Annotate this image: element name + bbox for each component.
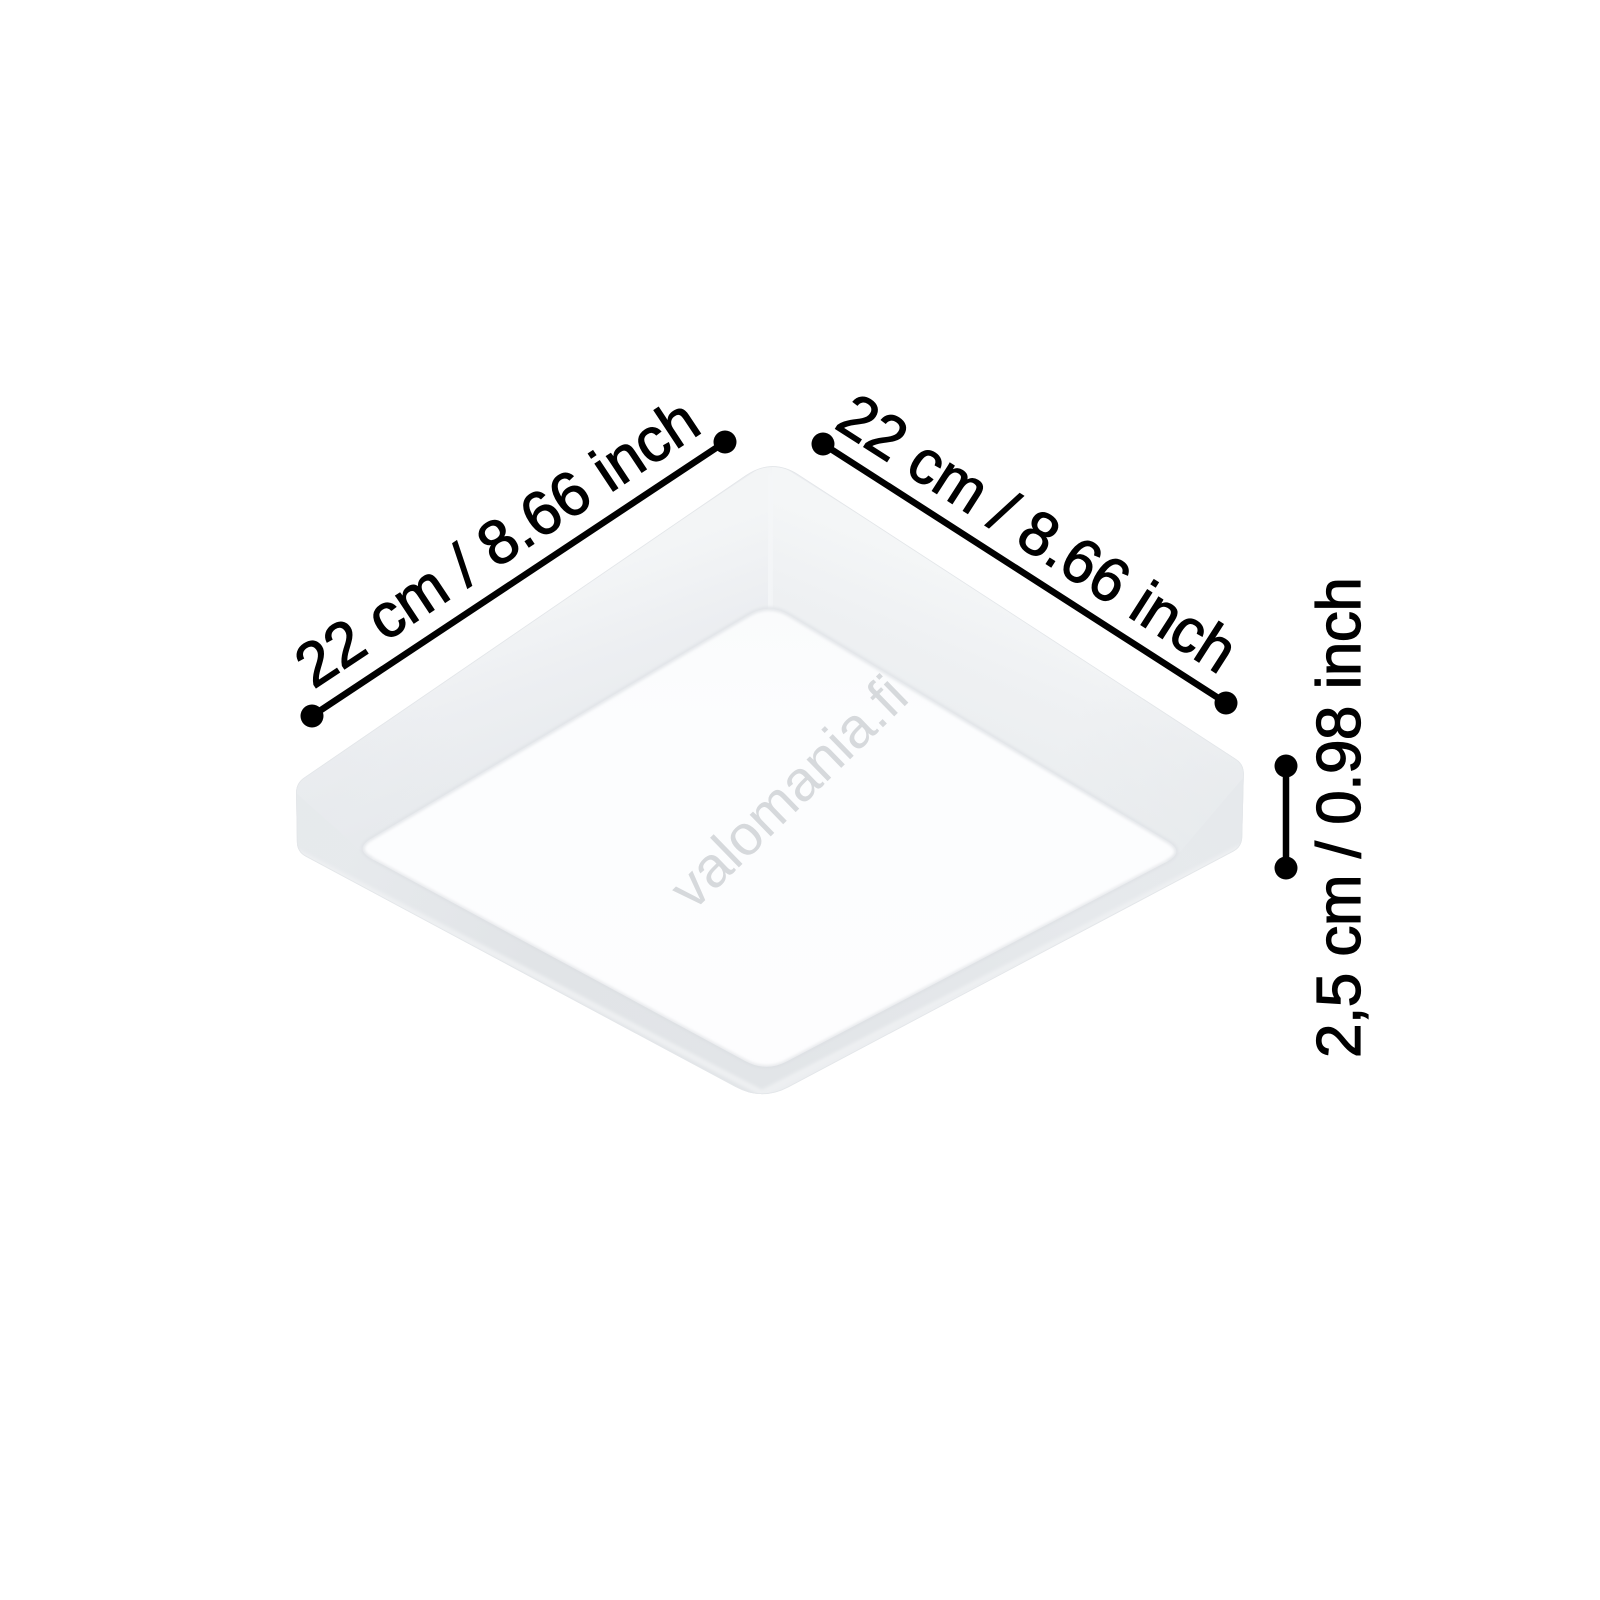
svg-text:2,5 cm / 0.98 inch: 2,5 cm / 0.98 inch xyxy=(1305,578,1374,1058)
